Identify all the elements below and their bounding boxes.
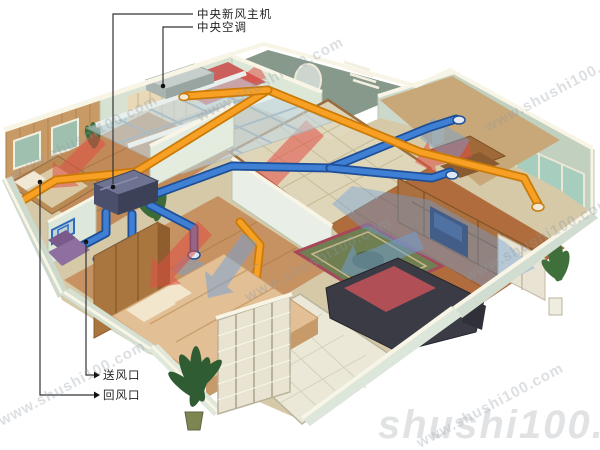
- label-central-ac: 中央空调: [197, 20, 247, 34]
- hvac-floorplan-illustration: 中央新风主机 中央空调 送风口 回风口 www.shushi100.com ww…: [0, 0, 600, 450]
- label-fresh-air-host: 中央新风主机: [197, 7, 272, 21]
- watermark-diagonal: www.shushi100.com: [0, 338, 149, 430]
- watermark-footer: shushi100.com: [378, 403, 600, 447]
- label-return-vent: 回风口: [103, 389, 141, 402]
- apartment-scene: 中央新风主机 中央空调 送风口 回风口 www.shushi100.com ww…: [0, 0, 600, 450]
